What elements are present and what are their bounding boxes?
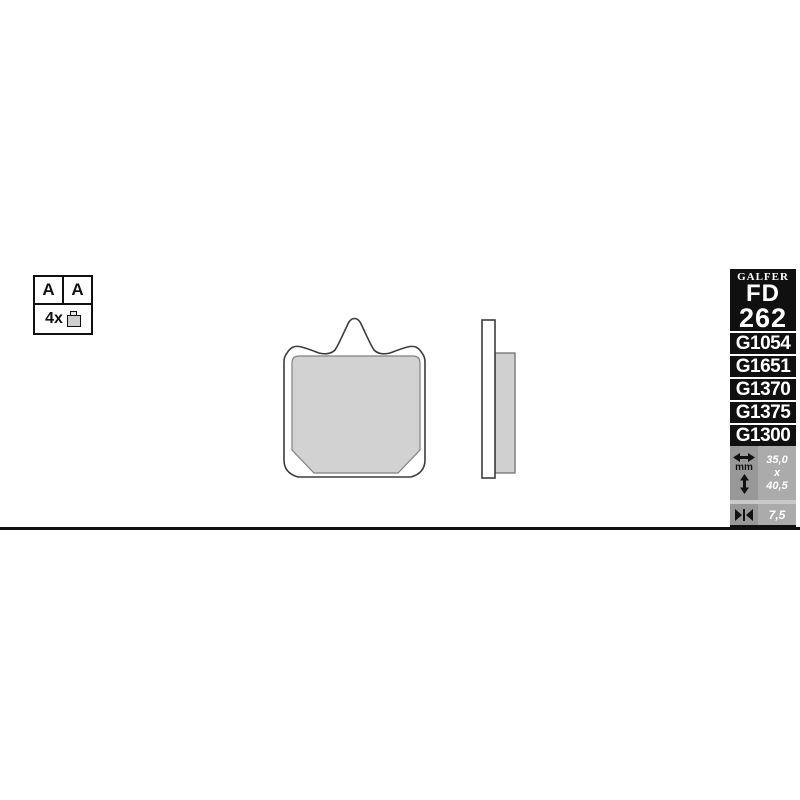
- dimensions-values: 35,0 x 40,5: [758, 446, 796, 500]
- pad-width-value: 35,0: [766, 454, 787, 467]
- brake-pad-icon: [67, 311, 81, 327]
- rear-axle-code: A: [71, 280, 83, 300]
- sidebar-bottom-bar: [730, 525, 796, 527]
- fitment-legend-bottom-row: 4x: [35, 305, 91, 333]
- model-prefix: FD: [730, 283, 796, 305]
- backing-plate-side: [482, 320, 495, 478]
- friction-material-side: [495, 353, 515, 473]
- front-axle-code: A: [42, 280, 54, 300]
- compound-code: G1054: [730, 331, 796, 354]
- spec-sidebar: GALFER FD 262 G1054 G1651 G1370 G1375 G1…: [730, 269, 796, 527]
- brake-pad-icon-body: [67, 315, 81, 327]
- friction-material-front: [292, 356, 420, 473]
- product-diagram-page: A A 4x GALFER FD 262 G1054 G1651 G13: [0, 0, 800, 800]
- left-right-arrow-icon: [733, 453, 755, 462]
- compound-code: G1375: [730, 400, 796, 423]
- unit-label: mm: [735, 463, 753, 473]
- fitment-legend: A A 4x: [33, 275, 93, 335]
- compound-code: G1370: [730, 377, 796, 400]
- fitment-legend-top-row: A A: [35, 277, 91, 305]
- dimensions-panel: mm 35,0 x 40,5: [730, 446, 796, 500]
- compound-code: G1300: [730, 423, 796, 446]
- dimension-separator: x: [774, 467, 780, 480]
- thickness-arrow-icon: [734, 509, 754, 521]
- pad-height-value: 40,5: [766, 480, 787, 493]
- up-down-arrow-icon: [740, 474, 749, 494]
- baseline-rule: [0, 527, 800, 530]
- brake-pad-front-view: [275, 300, 430, 485]
- legend-cell-rear: A: [62, 277, 91, 303]
- pad-thickness-value: 7,5: [758, 504, 796, 525]
- dimensions-icons: mm: [730, 446, 758, 500]
- brake-pad-side-view: [478, 315, 520, 485]
- legend-cell-front: A: [35, 277, 62, 303]
- thickness-icon-cell: [730, 504, 758, 525]
- pads-quantity: 4x: [45, 310, 63, 328]
- thickness-panel: 7,5: [730, 504, 796, 525]
- compound-code: G1651: [730, 354, 796, 377]
- model-number: 262: [730, 305, 796, 331]
